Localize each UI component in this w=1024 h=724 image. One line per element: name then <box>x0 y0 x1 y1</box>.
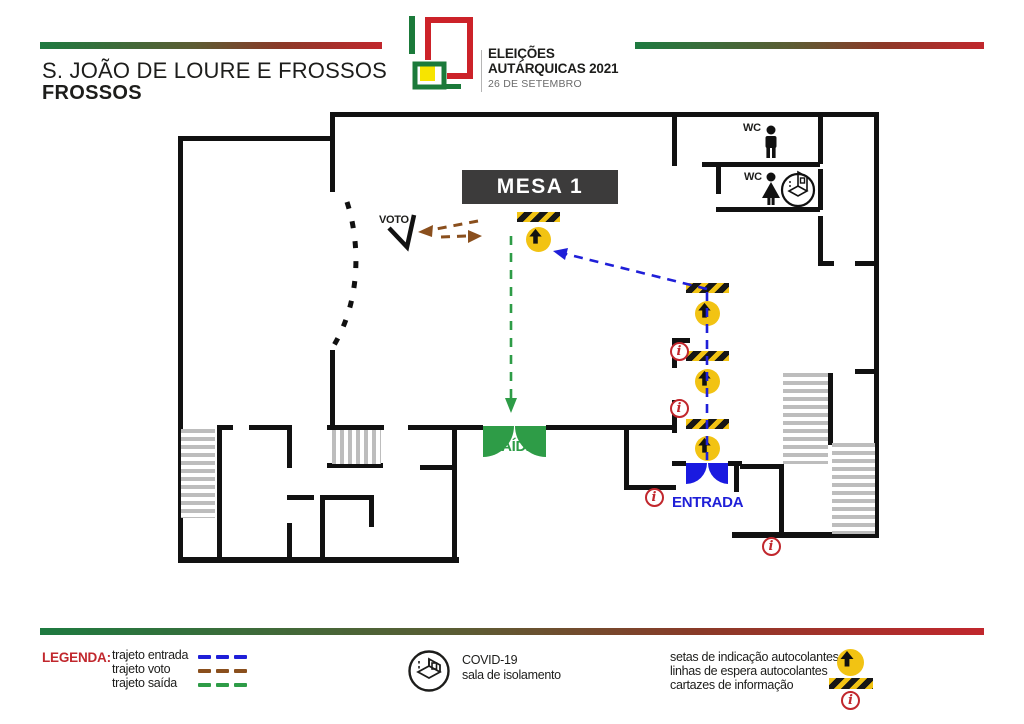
man-icon <box>766 126 777 159</box>
direction-arrow-sticker-legend-icon <box>837 649 864 676</box>
entrance-route <box>553 248 707 460</box>
covid-label-line1: COVID-19 <box>462 653 517 667</box>
legend-route-entrada-label: trajeto entrada <box>112 648 198 662</box>
legend-item-arrows: setas de indicação autocolantes <box>670 650 839 664</box>
covid-isolation-icon <box>407 649 453 695</box>
exit-route <box>505 236 517 413</box>
info-poster-legend-icon: i <box>841 691 860 710</box>
vote-route <box>418 221 482 243</box>
bottom-accent-bar <box>40 628 984 635</box>
voto-checkmark-icon <box>389 215 414 247</box>
legend-routes: trajeto entrada trajeto voto trajeto saí… <box>112 648 252 690</box>
exit-door <box>483 426 546 457</box>
legend-item-lines: linhas de espera autocolantes <box>670 664 827 678</box>
legend-route-voto-label: trajeto voto <box>112 662 198 676</box>
entrance-door <box>686 463 728 484</box>
legend-route-saida: trajeto saída <box>112 676 252 690</box>
booth-screen-dashed-wall <box>331 202 356 350</box>
waiting-line-sticker-legend-icon <box>829 678 873 689</box>
legend-item-posters: cartazes de informação <box>670 678 793 692</box>
legend-title: LEGENDA: <box>42 650 111 665</box>
woman-icon <box>762 173 780 206</box>
routes-overlay <box>0 0 1024 724</box>
exit-route-dash-swatch <box>198 674 252 692</box>
legend-route-saida-label: trajeto saída <box>112 676 198 690</box>
isolation-room-icon <box>782 172 814 206</box>
covid-label-line2: sala de isolamento <box>462 668 561 682</box>
